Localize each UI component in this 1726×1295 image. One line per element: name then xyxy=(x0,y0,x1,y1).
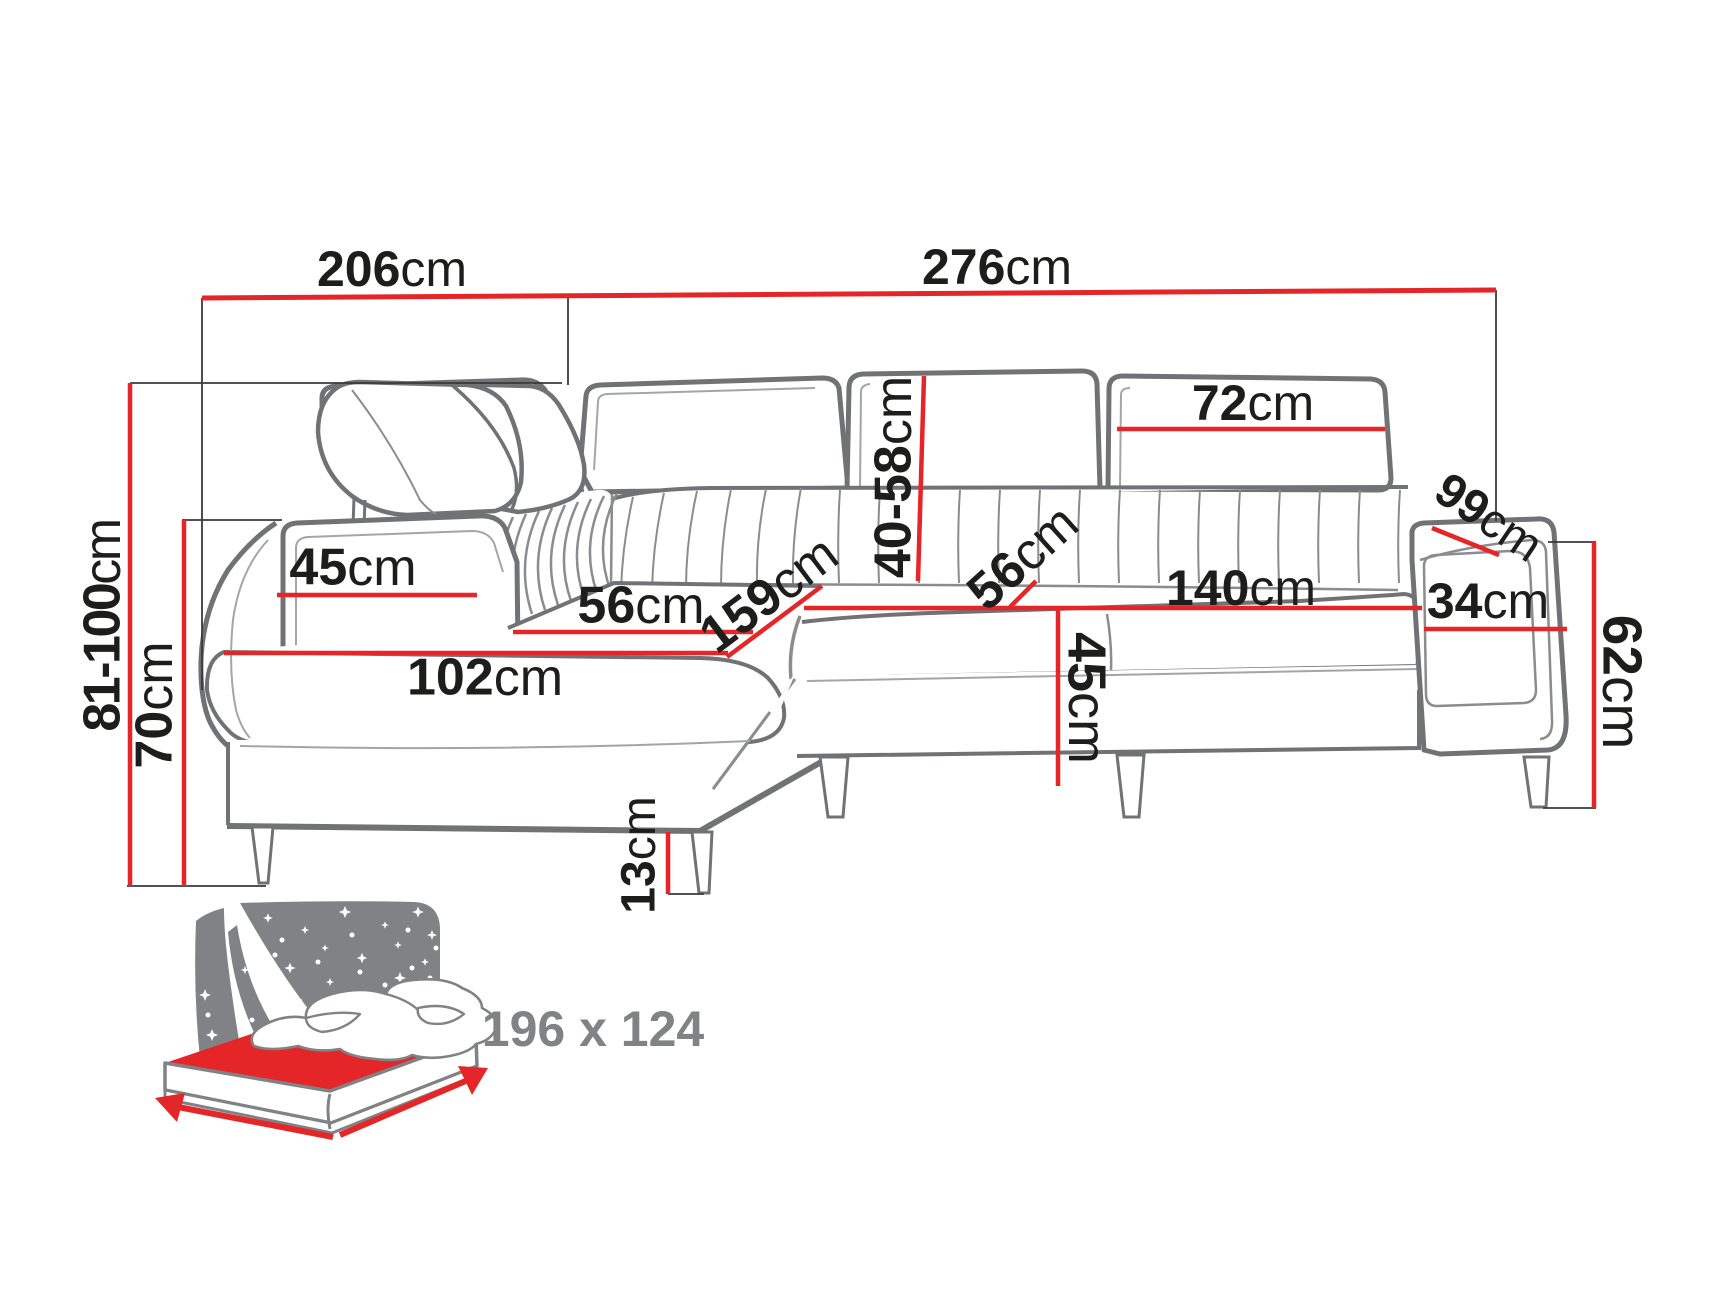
svg-text:13cm: 13cm xyxy=(613,796,666,913)
svg-text:45cm: 45cm xyxy=(1057,632,1117,764)
svg-text:45cm: 45cm xyxy=(289,539,416,597)
svg-text:34cm: 34cm xyxy=(1427,573,1549,629)
svg-text:72cm: 72cm xyxy=(1192,375,1314,431)
svg-text:102cm: 102cm xyxy=(407,649,563,707)
svg-text:206cm: 206cm xyxy=(317,241,467,297)
svg-text:81-100cm: 81-100cm xyxy=(74,520,132,731)
svg-text:140cm: 140cm xyxy=(1166,560,1316,616)
svg-text:70cm: 70cm xyxy=(126,641,184,768)
svg-text:196 x 124: 196 x 124 xyxy=(482,1001,705,1057)
svg-text:56cm: 56cm xyxy=(577,577,704,635)
svg-text:40-58cm: 40-58cm xyxy=(865,376,923,578)
svg-text:62cm: 62cm xyxy=(1591,615,1653,750)
svg-text:276cm: 276cm xyxy=(922,239,1072,295)
